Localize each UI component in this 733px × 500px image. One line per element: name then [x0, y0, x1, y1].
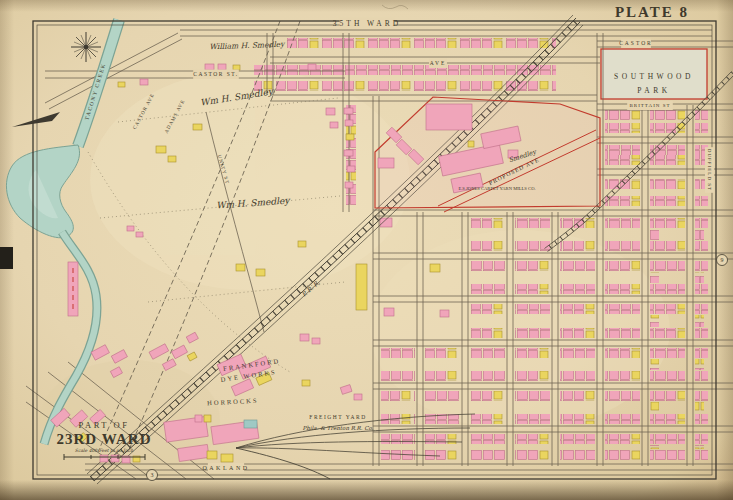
plate-ref-bottom: 3: [151, 472, 154, 478]
label-freight-yard: FREIGHT YARD: [309, 414, 366, 420]
plate-number: PLATE 8: [615, 4, 689, 20]
street-duffield: DUFFIELD ST: [707, 149, 712, 191]
map-canvas: PLATE 835TH WARDCASTORSOUTHWOODPARKBRITT…: [0, 0, 733, 500]
atlas-page: PLATE 835TH WARDCASTORSOUTHWOODPARKBRITT…: [0, 0, 733, 500]
street-ave: AVE: [430, 60, 447, 66]
ward-top-label: 35TH WARD: [333, 19, 401, 28]
pencil-mark: [382, 5, 408, 9]
park-name-line2: PARK: [637, 86, 670, 95]
street-castor-left: CASTOR ST.: [193, 71, 238, 77]
mill-property: [375, 97, 600, 212]
corner-ward: 23RD WARD: [57, 431, 152, 447]
owner-william-smedley: William H. Smedley: [209, 40, 286, 52]
label-freight-yard-co: Phila. & Trenton R.R. Co.: [303, 425, 374, 431]
corner-part-of: PART OF: [79, 420, 130, 430]
street-brittain: BRITTAIN ST: [629, 103, 670, 108]
street-castor-right: CASTOR: [619, 40, 653, 46]
corner-scale: Scale 400 Feet to an Inch: [75, 448, 133, 453]
compass-rose-icon: [71, 32, 101, 62]
plate-ref-right: 9: [721, 257, 724, 263]
street-oakland: OAKLAND: [202, 465, 249, 471]
label-carpet-mills: E.S.JONES CARPET YARN MILLS CO.: [458, 186, 535, 191]
label-horrocks: HORROCKS: [207, 397, 259, 407]
park-name-line1: SOUTHWOOD: [614, 72, 694, 81]
survey-arrow-icon: [12, 112, 60, 127]
page-tab: [0, 247, 13, 269]
